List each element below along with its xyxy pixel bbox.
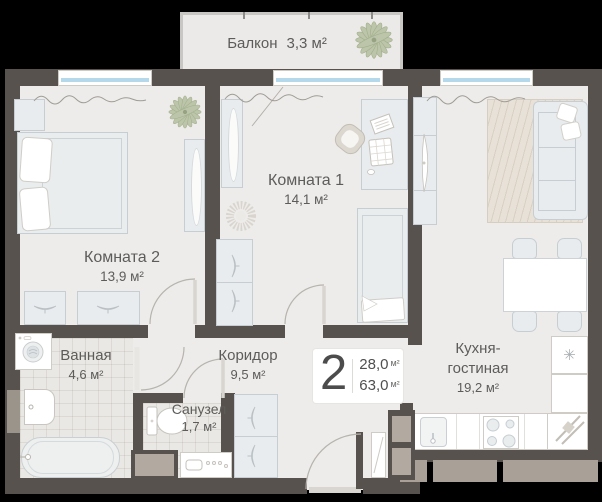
sofa-seats (538, 112, 576, 211)
single-bed (357, 208, 408, 323)
corridor-area: 9,5 м² (218, 366, 277, 383)
counter-divider (524, 414, 525, 449)
cabinet-room2 (24, 291, 66, 325)
bed-mattress (362, 215, 403, 317)
dining-chair (557, 238, 582, 259)
room1-name: Комната 1 (268, 170, 344, 191)
facade-ledge (503, 460, 598, 482)
bathroom-name: Ванная (60, 346, 111, 366)
hall-dresser (234, 394, 278, 478)
area-unit: м² (390, 379, 399, 389)
wardrobe-shelf (392, 448, 411, 475)
kitchen-corner-cabinet (546, 413, 588, 450)
badge-areas: 28,0м² 63,0м² (353, 355, 399, 397)
kitchen-label: Кухня-гостиная 19,2 м² (431, 339, 525, 396)
badge-total-area: 63,0м² (359, 376, 399, 397)
corridor-label: Коридор 9,5 м² (218, 346, 277, 383)
balcony-glazing-tick (371, 12, 373, 19)
bathtub-inner (27, 441, 114, 474)
dining-chair (512, 311, 537, 332)
room1-area: 14,1 м² (268, 191, 344, 209)
kitchen-name: Кухня-гостиная (431, 339, 525, 379)
washing-machine (15, 333, 52, 370)
badge-living-area: 28,0м² (359, 355, 399, 376)
nightstand (14, 99, 45, 131)
desk (361, 99, 408, 190)
sofa (533, 101, 588, 220)
tv-unit (413, 97, 437, 225)
balcony-glazing-tick (308, 12, 310, 19)
corridor-name: Коридор (218, 346, 277, 366)
dresser-divider (235, 436, 277, 437)
window-balcony-door (273, 70, 383, 86)
room1-label: Комната 1 14,1 м² (268, 170, 344, 209)
wall-bottom-left (5, 478, 307, 494)
hall-vanity (180, 452, 232, 478)
plan-badge: 2 28,0м² 63,0м² (313, 349, 403, 403)
kitchen-sink (420, 417, 447, 447)
counter-divider (456, 414, 457, 449)
hall-closet (131, 450, 178, 480)
counter-divider (479, 414, 480, 449)
dining-chair (557, 311, 582, 332)
window-glass (276, 78, 380, 82)
balcony-area: 3,3 м² (286, 35, 326, 52)
dining-chair (512, 238, 537, 259)
apartment-floor-plan: ✳ (0, 0, 602, 502)
tv-unit-shelf (414, 135, 436, 136)
kitchen-cabinet (551, 374, 588, 413)
kitchen-area: 19,2 м² (431, 379, 525, 396)
wall-corridor-top (195, 325, 285, 338)
wc-name: Санузел (172, 400, 227, 418)
balcony-label: Балкон3,3 м² (227, 35, 327, 52)
hall-mirror (371, 432, 386, 478)
room2-label: Комната 2 13,9 м² (84, 247, 160, 286)
area-unit: м² (390, 358, 399, 368)
room2-name: Комната 2 (84, 247, 160, 268)
wall-below-room1 (323, 325, 408, 338)
tv-unit-shelf (414, 190, 436, 191)
bathroom-sink (24, 389, 55, 425)
badge-rooms-count: 2 (313, 349, 352, 403)
balcony-name: Балкон (227, 35, 277, 52)
bathtub (21, 437, 120, 478)
dresser-room1 (216, 239, 253, 326)
bathroom-label: Ванная 4,6 м² (60, 346, 111, 383)
wc-area: 1,7 м² (172, 418, 227, 435)
facade-ledge (433, 460, 497, 482)
wc-label: Санузел 1,7 м² (172, 400, 227, 436)
room2-area: 13,9 м² (84, 268, 160, 286)
entrance-door-leaf (356, 432, 363, 489)
balcony-glazing-tick (243, 12, 245, 19)
window-glass (61, 78, 149, 82)
wall-right (588, 69, 602, 460)
wardrobe-shelf (392, 416, 411, 442)
snowflake-icon: ✳ (563, 346, 576, 364)
total-area-value: 63,0 (359, 377, 388, 394)
hall-wardrobe (388, 410, 415, 480)
fridge-cabinet: ✳ (551, 336, 588, 374)
bed-blanket (42, 138, 122, 229)
window-glass (443, 78, 530, 82)
cabinet-room2 (77, 291, 140, 325)
dresser-divider (217, 282, 252, 283)
window-kitchen (440, 70, 533, 86)
living-area-value: 28,0 (359, 356, 388, 373)
wall-pilaster (7, 390, 20, 433)
wardrobe-room1 (221, 99, 243, 188)
dining-table (503, 258, 587, 312)
sofa-seat-line (538, 180, 576, 181)
sofa-seat-line (538, 147, 576, 148)
stove (483, 416, 519, 449)
bathroom-area: 4,6 м² (60, 366, 111, 383)
double-bed (17, 132, 128, 234)
entrance-threshold (309, 487, 361, 493)
wardrobe-room2 (184, 139, 205, 232)
window-room2 (58, 70, 152, 86)
